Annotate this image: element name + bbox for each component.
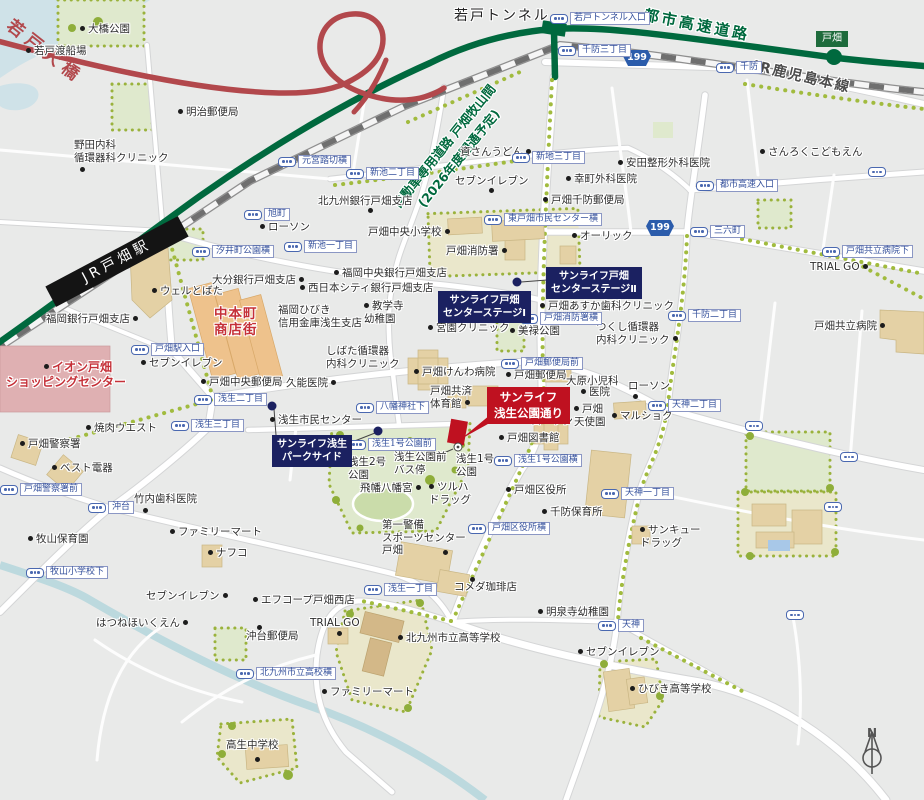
bus-stop-label: 浅生一丁目: [384, 583, 437, 596]
poi-label: セブンイレブン: [578, 646, 660, 659]
poi-marker-dot: [640, 527, 645, 532]
poi-marker-dot: [502, 248, 507, 253]
bus-stop-pill-icon: [192, 247, 210, 257]
poi-marker-dot: [368, 208, 373, 213]
bus-stop: 三六町: [690, 225, 745, 238]
compass-north-icon: N: [852, 726, 892, 738]
bus-stop: 浅生1号公園横: [494, 454, 582, 467]
poi-marker-dot: [510, 328, 515, 333]
poi-marker-dot: [470, 577, 475, 582]
poi-marker-dot: [80, 26, 85, 31]
bus-stop-label: 戸畑警察署前: [20, 483, 82, 496]
bus-stop: 八幡神社下: [356, 401, 429, 414]
poi-label: はつねほいくえん: [96, 617, 188, 630]
poi-label: 明治郵便局: [178, 106, 239, 119]
poi-label: サンキュードラッグ: [640, 524, 701, 549]
bus-stop-pill-icon: [690, 227, 708, 237]
bus-stop-label: 天神一丁目: [621, 487, 674, 500]
poi-marker-dot: [257, 625, 262, 630]
poi-label: ナフコ: [208, 547, 248, 560]
poi-label: ファミリーマート: [322, 686, 414, 699]
bus-stop: 千防: [716, 61, 762, 74]
bus-stop: 汐井町公園横: [192, 245, 274, 258]
poi-marker-dot: [201, 379, 206, 384]
poi-marker-dot: [566, 176, 571, 181]
bus-stop-pill-icon: [244, 210, 262, 220]
bus-stop-pill-icon: [558, 46, 576, 56]
poi-label: TRIAL GO: [810, 261, 868, 274]
bus-stop: 戸畑警察署前: [0, 483, 82, 496]
poi-label: 戸畑共立病院: [814, 320, 885, 333]
bus-stop-pill-icon: [0, 485, 18, 495]
poi-label: 浅生1号公園: [456, 453, 494, 478]
poi-marker-dot: [331, 380, 336, 385]
poi-marker-dot: [499, 435, 504, 440]
poi-label: ローソン: [628, 380, 670, 393]
bus-stop-pill-icon: [868, 167, 886, 177]
poi-label: セブンイレブン: [455, 175, 529, 188]
poi-label: 久能医院: [286, 377, 336, 390]
poi-label: 戸畑千防郵便局: [543, 194, 625, 207]
poi-label: ウェルとばた: [152, 285, 223, 298]
poi-label: つくし循環器内科クリニック: [596, 321, 678, 346]
poi-marker-dot: [618, 160, 623, 165]
poi-marker-dot: [80, 167, 85, 172]
bus-stop: 浅生三丁目: [171, 419, 244, 432]
bus-stop-pill-icon: [284, 242, 302, 252]
poi-marker-dot: [542, 509, 547, 514]
poi-marker-dot: [178, 109, 183, 114]
bus-stop-label: 汐井町公園横: [212, 245, 274, 258]
bus-stop: 戸畑共立病院下: [822, 245, 913, 258]
callout-sunlife-center-stage-2: サンライフ戸畑 センターステージⅡ: [546, 267, 642, 299]
poi-marker-dot: [141, 360, 146, 365]
callout-sunlife-asao-koen-dori: サンライフ 浅生公園通り: [487, 387, 570, 424]
bus-stop-pill-icon: [598, 621, 616, 631]
poi-marker-dot: [143, 508, 148, 513]
bus-stop: 若戸トンネル入口: [550, 12, 650, 25]
poi-marker-dot: [86, 425, 91, 430]
poi-marker-dot: [416, 485, 421, 490]
poi-label: 飛幡八幡宮: [360, 482, 421, 495]
bus-stop: 戸畑駅入口: [131, 343, 204, 356]
bus-stop-pill-icon: [840, 452, 858, 462]
poi-label: エフコープ戸畑西店: [253, 594, 355, 607]
poi-label: ファミリーマート: [170, 526, 262, 539]
poi-marker-dot: [429, 484, 434, 489]
poi-marker-dot: [630, 686, 635, 691]
bus-stop-pill-icon: [494, 456, 512, 466]
poi-label: ベスト電器: [52, 462, 113, 475]
bus-stop-label: 戸畑駅入口: [151, 343, 204, 356]
poi-marker-dot: [152, 288, 157, 293]
poi-label: 大橋公園: [80, 23, 130, 36]
poi-marker-dot: [443, 550, 448, 555]
bus-stop-label: 八幡神社下: [376, 401, 429, 414]
area-map: 若戸大橋 若戸トンネル 都市高速道路 JR鹿児島本線 自動車専用道路 戸畑牧山間…: [0, 0, 924, 800]
poi-marker-dot: [28, 536, 33, 541]
bus-stop-label: 戸畑郵便局前: [521, 357, 583, 370]
route-199-shield: 199: [646, 220, 674, 236]
poi-label: 千防保育所: [542, 506, 603, 519]
bus-stop-pill-icon: [346, 169, 364, 179]
poi-label: 戸畑区役所: [506, 484, 567, 497]
poi-marker-dot: [633, 394, 638, 399]
poi-label: 宮園クリニック: [428, 322, 510, 335]
expressway-exit-badge: 戸畑: [816, 31, 848, 47]
poi-marker-dot: [133, 316, 138, 321]
bus-stop-pill-icon: [824, 502, 842, 512]
poi-label: 高生中学校: [226, 739, 279, 752]
poi-label: 安田整形外科医院: [618, 157, 710, 170]
poi-label: 焼肉ウエスト: [86, 422, 157, 435]
bus-stop-label: 天神: [618, 619, 644, 632]
poi-label: 中本町商店街: [214, 306, 258, 338]
bus-stop: 浅生一丁目: [364, 583, 437, 596]
bus-stop-pill-icon: [601, 489, 619, 499]
poi-marker-dot: [540, 303, 545, 308]
poi-label: 福岡中央銀行戸畑支店: [334, 267, 447, 280]
poi-marker-dot: [673, 336, 678, 341]
bus-stop-label: 北九州市立高校横: [256, 667, 336, 680]
poi-label: しばた循環器内科クリニック: [326, 345, 400, 370]
poi-marker-dot: [170, 529, 175, 534]
poi-label: 戸畑天使園: [574, 403, 606, 428]
bus-stop-label: 牧山小学校下: [46, 566, 108, 579]
bus-stop-pill-icon: [26, 568, 44, 578]
bus-stop: 新池一丁目: [284, 240, 357, 253]
bus-stop-pill-icon: [278, 157, 296, 167]
poi-marker-dot: [337, 631, 342, 636]
bus-stop: [824, 502, 842, 512]
poi-marker-dot: [260, 224, 265, 229]
poi-marker-dot: [208, 550, 213, 555]
bus-stop-pill-icon: [648, 401, 666, 411]
poi-marker-dot: [760, 149, 765, 154]
poi-label: 浅生市民センター: [270, 414, 362, 427]
bus-stop-label: 都市高速入口: [716, 179, 778, 192]
poi-marker-dot: [299, 277, 304, 282]
bus-stop-label: 旭町: [264, 208, 290, 221]
poi-label: 幸町外科医院: [566, 173, 637, 186]
bus-stop-label: 若戸トンネル入口: [570, 12, 650, 25]
bus-stop: 浅生1号公園前: [348, 438, 436, 451]
poi-label: 美禄公園: [510, 325, 560, 338]
poi-marker-dot: [572, 233, 577, 238]
poi-marker-dot: [398, 635, 403, 640]
bus-stop-label: 千防三丁目: [578, 44, 631, 57]
bus-stop-label: 千防: [736, 61, 762, 74]
bus-stop: 浅生二丁目: [194, 393, 267, 406]
poi-marker-dot: [581, 389, 586, 394]
poi-label: 教学寺幼稚園: [364, 300, 404, 325]
bus-stop-label: 元宮踏切横: [298, 155, 351, 168]
bus-stop-label: 新池二丁目: [366, 167, 419, 180]
callout-sunlife-park-side: サンライフ浅生 パークサイド: [272, 435, 352, 467]
poi-label: TRIAL GO: [310, 617, 360, 630]
poi-marker-dot: [334, 270, 339, 275]
bus-stop: 東戸畑市民センター横: [484, 213, 602, 226]
bus-stop: 千防二丁目: [668, 309, 741, 322]
bus-stop-pill-icon: [550, 14, 568, 24]
bus-stop-label: 浅生1号公園横: [514, 454, 582, 467]
bus-stop-label: 三六町: [710, 225, 745, 238]
bus-stop: 旭町: [244, 208, 290, 221]
poi-label: 野田内科循環器科クリニック: [74, 139, 169, 164]
bus-stop-label: 天神二丁目: [668, 399, 721, 412]
bus-stop: 天神二丁目: [648, 399, 721, 412]
bus-stop: 新池二丁目: [346, 167, 419, 180]
bus-stop-label: 浅生二丁目: [214, 393, 267, 406]
poi-marker-dot: [253, 597, 258, 602]
poi-label: 西日本シティ銀行戸畑支店: [300, 282, 433, 295]
poi-label: 戸畑あすか歯科クリニック: [540, 300, 674, 313]
bus-stop-pill-icon: [356, 403, 374, 413]
poi-marker-dot: [364, 303, 369, 308]
poi-marker-dot: [506, 487, 511, 492]
poi-marker-dot: [863, 264, 868, 269]
poi-label: さんろくこどもえん: [760, 146, 863, 159]
poi-marker-dot: [414, 369, 419, 374]
poi-label: 北九州銀行戸畑支店: [318, 195, 413, 208]
bus-stop-pill-icon: [512, 153, 530, 163]
poi-label: セブンイレブン: [146, 590, 228, 603]
bus-stop: [786, 610, 804, 620]
bus-stop: 沖台: [88, 501, 134, 514]
poi-marker-dot: [445, 229, 450, 234]
poi-marker-dot: [322, 689, 327, 694]
bus-stop-pill-icon: [484, 215, 502, 225]
bus-stop: 都市高速入口: [696, 179, 778, 192]
poi-label: 戸畑図書館: [499, 432, 560, 445]
poi-marker-dot: [26, 48, 31, 53]
poi-label: 若戸渡船場: [26, 45, 87, 58]
bus-stop-label: 新地三丁目: [532, 151, 585, 164]
bus-stop-label: 千防二丁目: [688, 309, 741, 322]
poi-marker-dot: [183, 620, 188, 625]
bus-stop-pill-icon: [88, 503, 106, 513]
poi-marker-dot: [506, 372, 511, 377]
poi-marker-dot: [20, 441, 25, 446]
callout-sunlife-center-stage-1: サンライフ戸畑 センターステージⅠ: [438, 291, 531, 323]
poi-label: 医院: [581, 386, 610, 399]
bus-stop-pill-icon: [194, 395, 212, 405]
bus-stop-label: 東戸畑市民センター横: [504, 213, 602, 226]
bus-stop: 千防三丁目: [558, 44, 631, 57]
poi-label: コメダ珈琲店: [454, 581, 517, 594]
poi-label: ツルハドラッグ: [429, 481, 471, 506]
bus-stop: [868, 167, 886, 177]
wakato-tunnel-label: 若戸トンネル: [454, 5, 550, 25]
poi-label: 竹内歯科医院: [134, 493, 197, 506]
poi-label: 浅生2号公園: [348, 456, 386, 481]
poi-marker-dot: [52, 465, 57, 470]
poi-label: 牧山保育園: [28, 533, 89, 546]
bus-stop-label: 戸畑共立病院下: [842, 245, 913, 258]
poi-label: 戸畑警察署: [20, 438, 81, 451]
poi-label: イオン戸畑: [44, 360, 112, 374]
poi-label: 戸畑郵便局: [506, 369, 567, 382]
bus-stop-label: 浅生三丁目: [191, 419, 244, 432]
bus-stop: 天神一丁目: [601, 487, 674, 500]
poi-label: 福岡ひびき信用金庫浅生支店: [278, 304, 362, 329]
poi-label: 沖台郵便局: [246, 630, 299, 643]
poi-marker-dot: [612, 413, 617, 418]
poi-marker-dot: [538, 609, 543, 614]
poi-label: 戸畑けんわ病院: [414, 366, 496, 379]
bus-stop: 戸畑郵便局前: [501, 357, 583, 370]
poi-marker-dot: [255, 757, 260, 762]
bus-stop-pill-icon: [822, 247, 840, 257]
bus-stop: 元宮踏切横: [278, 155, 351, 168]
bus-stop-pill-icon: [668, 311, 686, 321]
bus-stop: 天神: [598, 619, 644, 632]
bus-stop-label: 新池一丁目: [304, 240, 357, 253]
poi-marker-dot: [270, 417, 275, 422]
bus-stop-pill-icon: [501, 359, 519, 369]
poi-label: 明泉寺幼稚園: [538, 606, 609, 619]
poi-label: 大分銀行戸畑支店: [212, 274, 304, 287]
bus-stop: [745, 421, 763, 431]
bus-stop-pill-icon: [364, 585, 382, 595]
bus-stop-pill-icon: [171, 421, 189, 431]
poi-label: ローソン: [260, 221, 310, 234]
poi-label: 北九州市立高等学校: [398, 632, 501, 645]
poi-marker-dot: [574, 406, 579, 411]
poi-marker-dot: [880, 323, 885, 328]
bus-stop-pill-icon: [745, 421, 763, 431]
bus-stop-label: 沖台: [108, 501, 134, 514]
poi-label: 浅生公園前バス停: [394, 451, 447, 476]
bus-stop: 戸畑消防署横: [520, 312, 602, 325]
bus-stop-pill-icon: [696, 181, 714, 191]
poi-label: ひびき高等学校: [630, 683, 712, 696]
poi-label: オーリック: [572, 230, 633, 243]
bus-stop: 新地三丁目: [512, 151, 585, 164]
bus-stop: 牧山小学校下: [26, 566, 108, 579]
poi-marker-dot: [465, 400, 470, 405]
poi-label: 福岡銀行戸畑支店: [46, 313, 138, 326]
poi-marker-dot: [223, 593, 228, 598]
poi-label: セブンイレブン: [141, 357, 223, 370]
bus-stop: 戸畑区役所横: [468, 522, 550, 535]
poi-label: 戸畑共済体育館: [430, 385, 472, 410]
poi-marker-dot: [44, 364, 49, 369]
poi-label: 戸畑消防署: [446, 245, 507, 258]
bus-stop-label: 浅生1号公園前: [368, 438, 436, 451]
bus-stop: [840, 452, 858, 462]
poi-marker-dot: [543, 197, 548, 202]
bus-stop-pill-icon: [716, 63, 734, 73]
bus-stop: 北九州市立高校横: [236, 667, 336, 680]
poi-marker-dot: [578, 649, 583, 654]
bus-stop-label: 戸畑区役所横: [488, 522, 550, 535]
bus-stop-pill-icon: [786, 610, 804, 620]
poi-marker-dot: [489, 188, 494, 193]
poi-marker-dot: [428, 325, 433, 330]
bus-stop-pill-icon: [131, 345, 149, 355]
bus-stop-pill-icon: [468, 524, 486, 534]
bus-stop-label: 戸畑消防署横: [540, 312, 602, 325]
poi-label: 戸畑中央郵便局: [201, 376, 283, 389]
poi-label: 戸畑中央小学校: [368, 226, 450, 239]
poi-label: ショッピングセンター: [6, 375, 126, 389]
poi-label: 第一警備スポーツセンター戸畑: [382, 519, 466, 557]
bus-stop-pill-icon: [236, 669, 254, 679]
